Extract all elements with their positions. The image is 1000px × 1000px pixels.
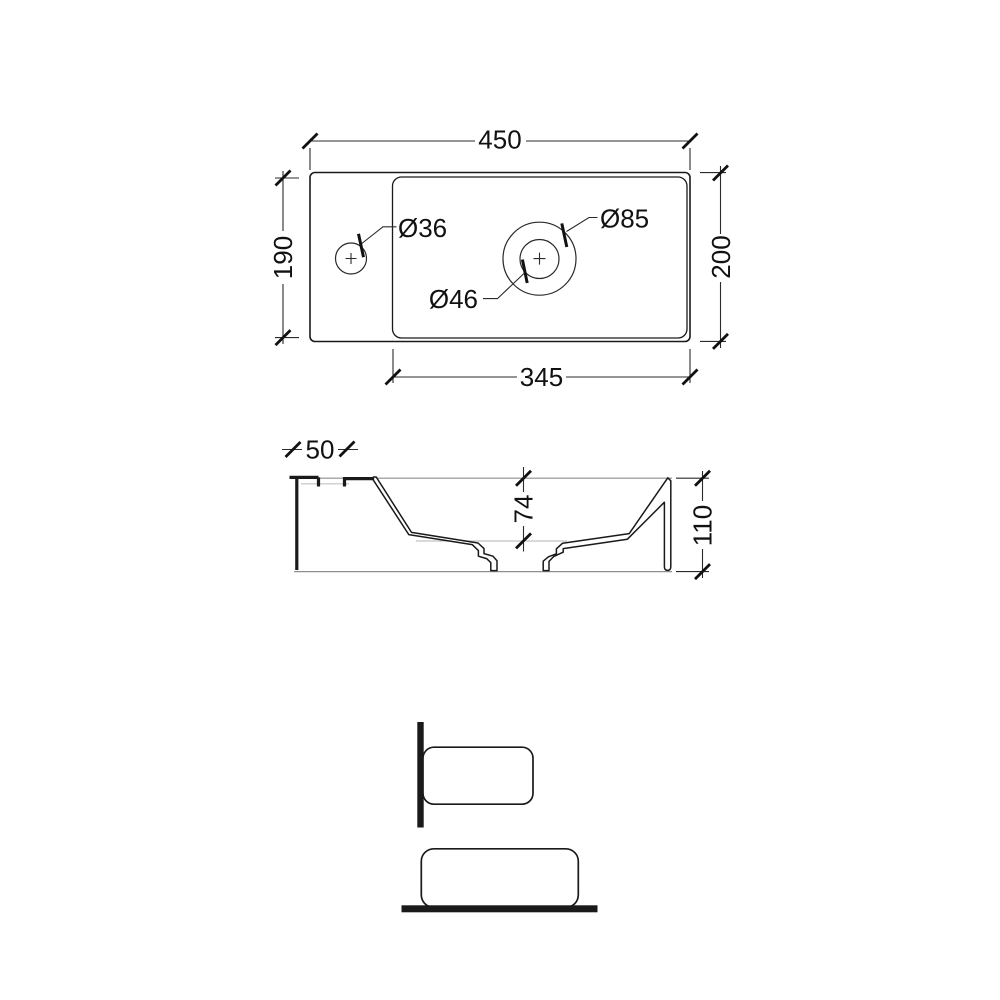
label-waste-hole-diameter: Ø46 <box>429 284 478 314</box>
dim-label-overall-depth: 200 <box>706 235 736 278</box>
dim-label-overall-height: 110 <box>688 505 718 546</box>
leader-waste-recess: Ø85 <box>562 204 649 248</box>
top-view: 450 190 200 345 Ø36 <box>268 125 736 393</box>
dim-fixing-slot: 50 <box>282 435 358 465</box>
section-view: 50 74 110 <box>282 435 718 580</box>
waste-center-mark <box>534 253 546 265</box>
tap-hole-center-mark <box>346 253 357 264</box>
bowl-section-left <box>373 477 497 571</box>
bowl-section-right <box>543 478 671 571</box>
washbasin-technical-drawing: 450 190 200 345 Ø36 <box>0 0 1000 1000</box>
dim-label-bowl-depth: 190 <box>268 236 298 279</box>
counter-line <box>402 905 598 912</box>
wall-mounting-icon <box>417 722 533 828</box>
dim-label-fixing-slot: 50 <box>306 435 335 465</box>
dim-label-bowl-inner-depth: 74 <box>509 495 539 524</box>
leader-tap-hole: Ø36 <box>359 213 448 257</box>
countertop-icon <box>402 849 598 913</box>
basin-side-silhouette <box>423 747 533 804</box>
dim-overall-height: 110 <box>676 471 718 579</box>
dim-bowl-inner-depth: 74 <box>509 467 539 552</box>
fixing-hook-profile <box>345 479 377 487</box>
leader-waste-hole: Ø46 <box>429 260 527 314</box>
dim-overall-depth: 200 <box>700 166 736 349</box>
basin-front-silhouette <box>421 849 578 908</box>
dim-label-overall-width: 450 <box>478 125 521 155</box>
dim-overall-width: 450 <box>303 125 698 171</box>
dim-label-bowl-width: 345 <box>520 362 563 392</box>
leader-tick <box>522 260 527 283</box>
fixing-bracket-profile <box>290 477 319 570</box>
leader-tick <box>562 223 567 247</box>
dim-bowl-depth: 190 <box>268 171 299 346</box>
label-tap-hole-diameter: Ø36 <box>398 213 447 243</box>
dim-bowl-width: 345 <box>386 349 698 392</box>
technical-drawing-page: 450 190 200 345 Ø36 <box>0 0 1000 1000</box>
label-waste-recess-diameter: Ø85 <box>600 204 649 234</box>
